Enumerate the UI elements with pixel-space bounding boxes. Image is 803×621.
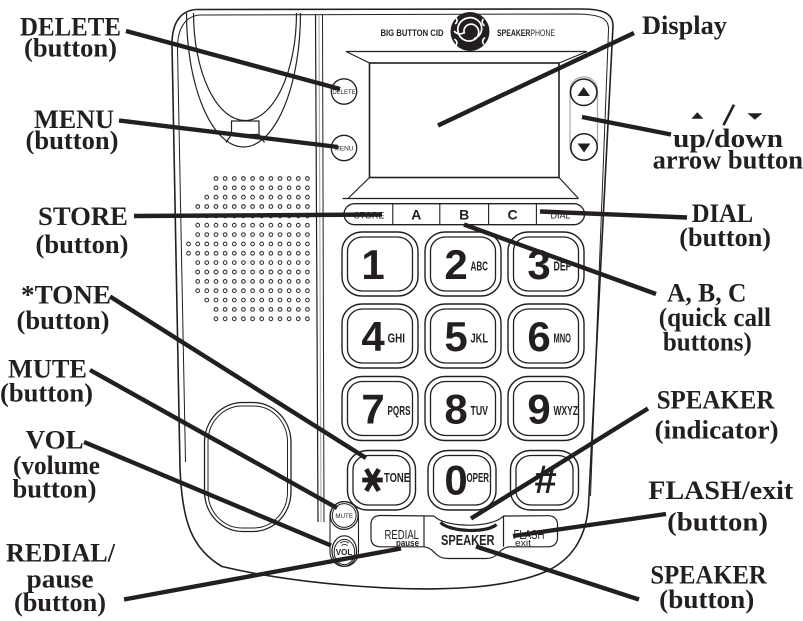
svg-text:Display: Display xyxy=(642,11,727,40)
svg-text:button): button) xyxy=(13,475,97,504)
svg-text:DELETE: DELETE xyxy=(332,90,355,96)
svg-text:MUTE: MUTE xyxy=(335,513,353,520)
svg-text:WXYZ: WXYZ xyxy=(554,403,579,418)
svg-text:TONE: TONE xyxy=(384,470,410,485)
svg-text:STORE: STORE xyxy=(38,202,128,231)
svg-text:GHI: GHI xyxy=(388,331,406,346)
svg-text:JKL: JKL xyxy=(471,331,489,346)
svg-text:SPEAKER: SPEAKER xyxy=(441,533,495,549)
svg-text:(button): (button) xyxy=(659,585,754,614)
svg-text:FLASH/exit: FLASH/exit xyxy=(648,476,793,505)
svg-text:4: 4 xyxy=(361,313,385,360)
svg-text:0: 0 xyxy=(444,457,467,504)
svg-text:PQRS: PQRS xyxy=(388,403,411,418)
svg-text:(button): (button) xyxy=(36,230,129,259)
svg-text:(button): (button) xyxy=(17,306,110,335)
svg-text:9: 9 xyxy=(527,386,550,433)
svg-text:exit: exit xyxy=(515,538,532,548)
svg-text:(button): (button) xyxy=(26,126,119,155)
svg-text:A: A xyxy=(411,207,421,223)
svg-text:B: B xyxy=(459,207,469,223)
svg-text:REDIAL/: REDIAL/ xyxy=(6,539,116,568)
svg-text:TUV: TUV xyxy=(471,403,489,418)
svg-text:8: 8 xyxy=(444,386,467,433)
svg-text:arrow button: arrow button xyxy=(653,146,803,175)
svg-text:(button): (button) xyxy=(0,379,93,408)
svg-text:1: 1 xyxy=(361,241,384,288)
svg-text:(button): (button) xyxy=(679,223,771,252)
svg-text:(indicator): (indicator) xyxy=(655,416,779,445)
svg-text:SPEAKERPHONE: SPEAKERPHONE xyxy=(497,28,555,39)
svg-text:(button): (button) xyxy=(667,507,768,536)
svg-text:SPEAKER: SPEAKER xyxy=(657,386,775,415)
svg-text:OPER: OPER xyxy=(467,470,490,485)
svg-text:BIG BUTTON CID: BIG BUTTON CID xyxy=(381,28,444,39)
svg-text:C: C xyxy=(507,207,517,223)
svg-text:(button): (button) xyxy=(24,34,117,63)
svg-text:ABC: ABC xyxy=(471,259,489,274)
svg-text:2: 2 xyxy=(444,241,467,288)
svg-text:VOL: VOL xyxy=(336,548,353,557)
svg-text:(button): (button) xyxy=(14,588,106,617)
svg-text:5: 5 xyxy=(444,313,467,360)
svg-text:pause: pause xyxy=(396,538,419,548)
svg-text:6: 6 xyxy=(527,313,550,360)
svg-text:MNO: MNO xyxy=(554,331,572,346)
svg-text:7: 7 xyxy=(361,386,384,433)
svg-text:buttons): buttons) xyxy=(663,328,752,357)
